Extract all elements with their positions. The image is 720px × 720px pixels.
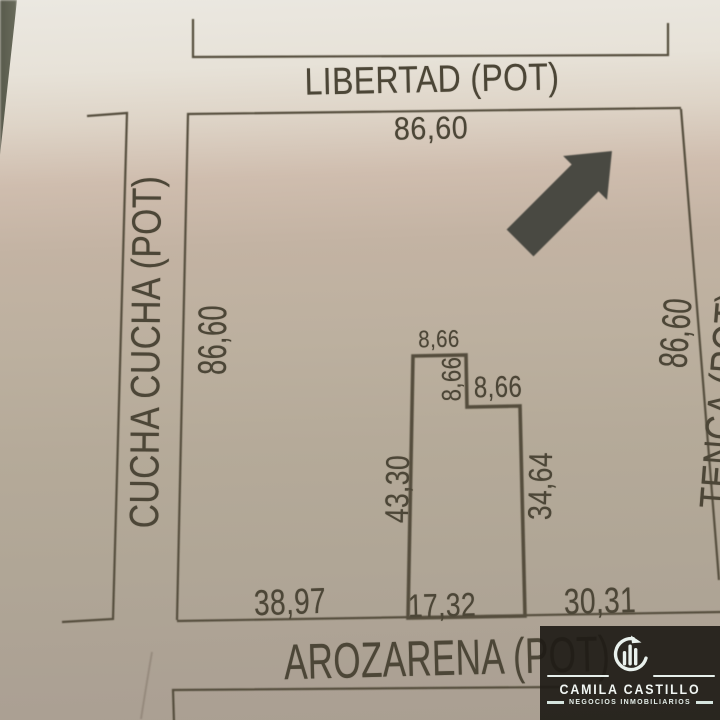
street-label-libertad: LIBERTAD (POT) — [304, 58, 560, 101]
watermark-left-rule — [547, 675, 609, 677]
brand-watermark: CAMILA CASTILLO NEGOCIOS INMOBILIARIOS — [540, 626, 720, 720]
block-dim-right: 86,60 — [653, 297, 698, 370]
paper-crease — [141, 652, 152, 719]
watermark-right-rule — [653, 675, 715, 677]
tagline-left-dash — [547, 701, 564, 704]
block-dim-top: 86,60 — [394, 111, 469, 144]
parcel-dim-left: 43,30 — [380, 455, 414, 524]
parcel-dim-notch-top: 8,66 — [474, 373, 523, 404]
block-dim-bottom-left: 38,97 — [253, 583, 326, 621]
tagline-right-dash — [696, 701, 713, 704]
brand-tagline: NEGOCIOS INMOBILIARIOS — [569, 699, 691, 706]
block-dim-bottom-right: 30,31 — [563, 582, 636, 620]
brand-tagline-row: NEGOCIOS INMOBILIARIOS — [540, 699, 720, 706]
north-arrow-icon — [498, 129, 634, 265]
street-label-cucha-cucha: CUCHA CUCHA (POT) — [124, 176, 168, 529]
block-south-outline — [173, 687, 560, 720]
parcel-dim-notch-side: 8,66 — [439, 357, 466, 402]
brand-name: CAMILA CASTILLO — [547, 682, 713, 697]
parcel-dim-right: 34,64 — [523, 452, 557, 521]
survey-plan-photo: LIBERTAD (POT) 86,60 CUCHA CUCHA (POT) 8… — [0, 0, 720, 720]
block-dim-left: 86,60 — [193, 305, 234, 375]
parcel-dim-top: 8,66 — [418, 328, 460, 353]
block-north-outline — [193, 19, 668, 57]
block-west-outline — [62, 113, 127, 622]
parcel-dim-bottom: 17,32 — [408, 588, 477, 623]
brand-monogram-icon — [606, 629, 656, 679]
